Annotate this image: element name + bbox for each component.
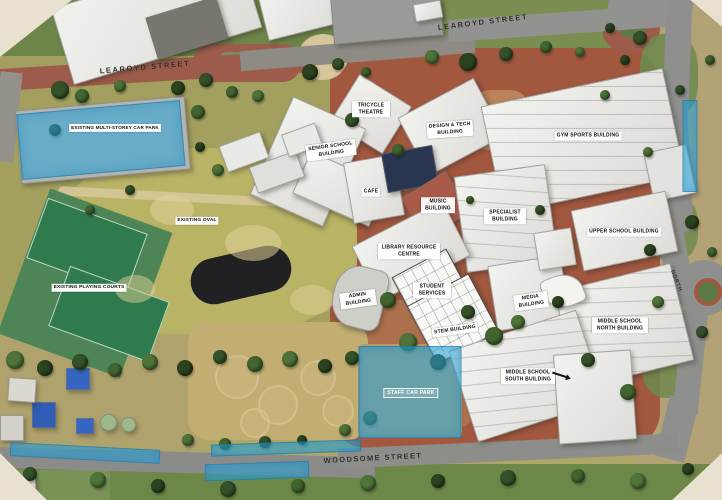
tree bbox=[282, 351, 298, 367]
tree bbox=[431, 474, 445, 488]
tree bbox=[499, 47, 513, 61]
tree bbox=[571, 469, 585, 483]
tree bbox=[425, 50, 439, 64]
tree bbox=[707, 247, 717, 257]
label-design-tech-building: DESIGN & TECH BUILDING bbox=[427, 120, 474, 139]
tree bbox=[633, 31, 647, 45]
building-west-edge-south bbox=[0, 415, 24, 441]
street-label-learoyd-street-east: LEAROYD STREET bbox=[437, 12, 528, 32]
tree bbox=[125, 185, 135, 195]
tree bbox=[511, 315, 525, 329]
tree bbox=[675, 85, 685, 95]
tree bbox=[108, 363, 122, 377]
overlay-label-staff-car-park: STAFF CAR PARK bbox=[383, 388, 438, 398]
label-specialist-building: SPECIALIST BUILDING bbox=[484, 208, 526, 224]
tree bbox=[466, 196, 474, 204]
tree bbox=[318, 359, 332, 373]
label-middle-school-north-building: MIDDLE SCHOOL NORTH BUILDING bbox=[592, 317, 648, 333]
tree bbox=[575, 47, 585, 57]
tree bbox=[291, 479, 305, 493]
tree bbox=[552, 296, 564, 308]
tree bbox=[392, 144, 404, 156]
label-middle-school-south-building: MIDDLE SCHOOL SOUTH BUILDING bbox=[501, 368, 555, 384]
tree bbox=[23, 467, 37, 481]
tree bbox=[600, 90, 610, 100]
water-tank-a bbox=[100, 414, 117, 431]
tree bbox=[461, 305, 475, 319]
label-existing-playing-courts: EXISTING PLAYING COURTS bbox=[52, 284, 127, 292]
tree bbox=[177, 360, 193, 376]
tree bbox=[220, 481, 236, 497]
tree bbox=[332, 58, 344, 70]
label-student-services: STUDENT SERVICES bbox=[413, 282, 451, 298]
water-tank-b bbox=[121, 417, 136, 432]
tree bbox=[339, 424, 351, 436]
tree bbox=[142, 354, 158, 370]
tree bbox=[114, 80, 126, 92]
overlay-label-existing-multi-storey-car-park: EXISTING MULTI-STOREY CAR PARK bbox=[69, 124, 161, 132]
site-plan-canvas: EXISTING MULTI-STOREY CAR PARKSTAFF CAR … bbox=[0, 0, 722, 500]
tree bbox=[535, 205, 545, 215]
tree bbox=[361, 67, 371, 77]
tree bbox=[72, 354, 88, 370]
tree bbox=[581, 353, 595, 367]
tree bbox=[485, 327, 503, 345]
tree bbox=[620, 384, 636, 400]
overlay-woodsome-parking-south bbox=[205, 461, 310, 482]
tree bbox=[644, 244, 656, 256]
label-existing-oval: EXISTING OVAL bbox=[175, 217, 218, 225]
tree bbox=[302, 64, 318, 80]
tree bbox=[182, 434, 194, 446]
tree bbox=[51, 81, 69, 99]
label-library-resource-centre: LIBRARY RESOURCE CENTRE bbox=[378, 243, 440, 259]
label-upper-school-building: UPPER SCHOOL BUILDING bbox=[587, 228, 661, 237]
tree bbox=[652, 296, 664, 308]
tree bbox=[345, 351, 359, 365]
tree bbox=[226, 86, 238, 98]
aerial-photo: EXISTING MULTI-STOREY CAR PARKSTAFF CAR … bbox=[0, 0, 722, 500]
tree bbox=[195, 142, 205, 152]
building-media-north bbox=[533, 227, 576, 270]
tree bbox=[643, 147, 653, 157]
shade-structure-blue-c bbox=[76, 418, 94, 434]
label-tricycle-theatre: TRICYCLE THEATRE bbox=[352, 101, 390, 117]
tree bbox=[212, 164, 224, 176]
tree bbox=[630, 473, 646, 489]
tree bbox=[682, 463, 694, 475]
label-cafe: CAFE bbox=[362, 188, 380, 197]
tree bbox=[605, 23, 615, 33]
tree bbox=[500, 470, 516, 486]
tree bbox=[199, 73, 213, 87]
tree bbox=[37, 360, 53, 376]
tree bbox=[247, 356, 263, 372]
overlay-kerbside-parking-east bbox=[683, 100, 698, 192]
street-label-woodsome-street: WOODSOME STREET bbox=[323, 451, 422, 465]
tree bbox=[459, 53, 477, 71]
building-west-edge bbox=[7, 377, 37, 403]
tree bbox=[685, 215, 699, 229]
tree bbox=[360, 475, 376, 491]
tree bbox=[540, 41, 552, 53]
tree bbox=[252, 90, 264, 102]
shade-structure-blue-b bbox=[32, 402, 56, 428]
tree bbox=[75, 89, 89, 103]
tree bbox=[6, 351, 24, 369]
tree bbox=[696, 326, 708, 338]
tree bbox=[380, 292, 396, 308]
label-gym-sports-building: GYM SPORTS BUILDING bbox=[555, 132, 622, 141]
tree bbox=[705, 55, 715, 65]
tree bbox=[191, 105, 205, 119]
tree bbox=[85, 205, 95, 215]
shade-structure-blue-a bbox=[66, 368, 90, 390]
tree bbox=[90, 472, 106, 488]
tree bbox=[620, 55, 630, 65]
tree bbox=[213, 350, 227, 364]
tree bbox=[151, 479, 165, 493]
tree bbox=[171, 81, 185, 95]
label-music-building: MUSIC BUILDING bbox=[421, 197, 455, 213]
